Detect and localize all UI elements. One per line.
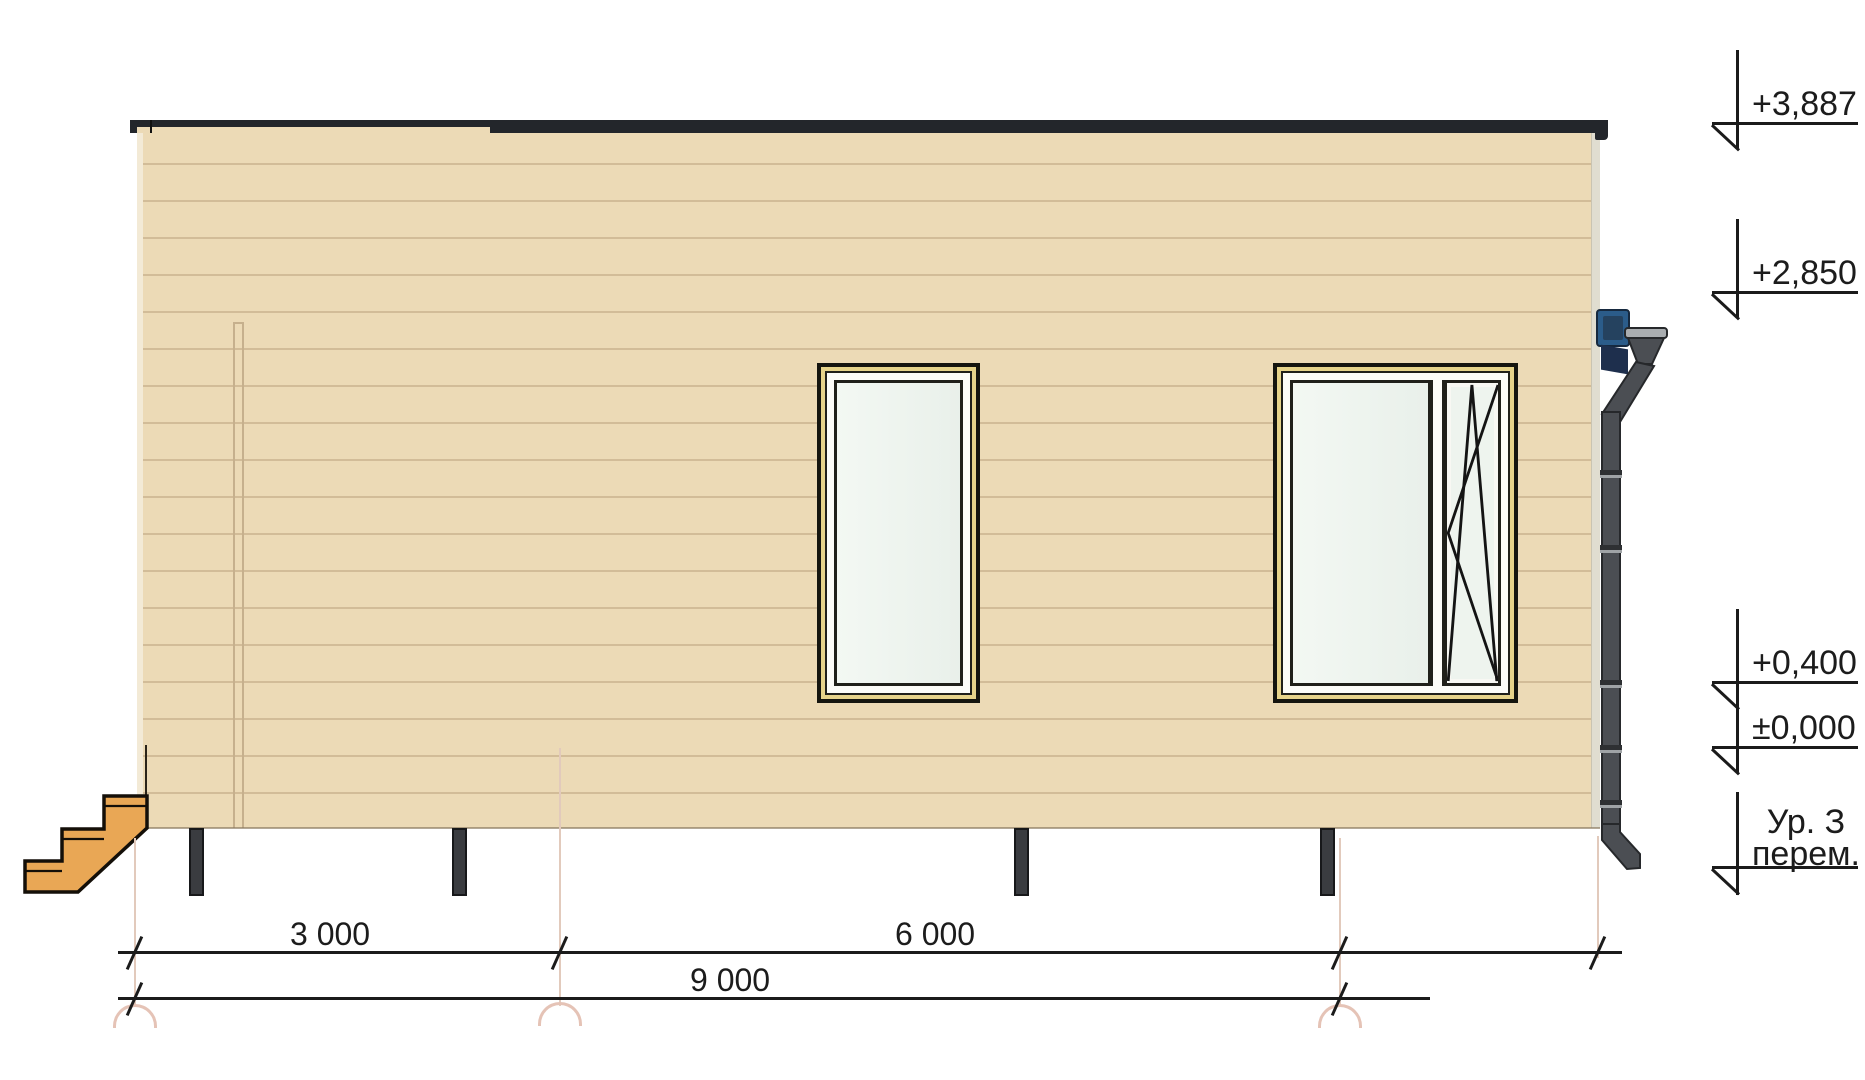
elevation-marker-line <box>1736 219 1739 317</box>
roof-fascia-joint-tick <box>150 120 152 133</box>
wall-bottom-edge <box>137 827 1600 829</box>
grid-extension-line <box>559 748 561 1006</box>
elevation-marker-line <box>1736 674 1739 772</box>
foundation-pile <box>452 828 467 896</box>
window-2 <box>1273 363 1518 703</box>
tilt-turn-opening-symbol-icon <box>1447 383 1498 683</box>
foundation-pile <box>1014 828 1029 896</box>
elevation-value: +3,887 <box>1752 87 1857 121</box>
roof-fascia-left-step <box>137 127 490 133</box>
window-2-casing <box>1281 371 1510 695</box>
elevation-value: ±0,000 <box>1752 711 1856 745</box>
elevation-marker-line <box>1736 50 1739 148</box>
elevation-value: +2,850 <box>1752 256 1857 290</box>
grid-bubble-arc <box>113 1004 157 1028</box>
grid-bubble-arc <box>1318 1004 1362 1028</box>
grid-extension-line <box>1339 838 1341 1006</box>
grid-bubble-arc <box>538 1002 582 1026</box>
window-2-casement <box>1444 380 1501 686</box>
foundation-pile <box>1320 828 1335 896</box>
elevation-marker-line <box>1736 792 1739 895</box>
gutter-funnel <box>1628 338 1664 364</box>
window-1 <box>817 363 980 703</box>
ground-level-label-line2: перем. <box>1748 838 1864 870</box>
roof-fascia-right-lip <box>1595 121 1608 140</box>
grid-extension-line <box>1597 836 1599 958</box>
elevation-value: +0,400 <box>1752 646 1857 680</box>
window-2-mullion <box>1431 380 1444 686</box>
window-1-casing <box>825 371 972 695</box>
elevation-drawing-canvas: +3,887 +2,850 +0,400 ±0,000 Ур. З перем.… <box>0 0 1865 1080</box>
dimension-label-6000: 6 000 <box>895 918 975 950</box>
ground-level-label-line1: Ур. З <box>1748 806 1864 838</box>
dimension-label-9000: 9 000 <box>690 964 770 996</box>
downspout <box>1594 326 1674 876</box>
window-1-glass <box>834 380 963 686</box>
gutter-funnel-rim <box>1625 328 1667 338</box>
dimension-line-total <box>118 997 1430 1000</box>
window-2-fixed-pane <box>1290 380 1431 686</box>
grid-extension-line <box>134 838 136 1006</box>
left-corner-trim <box>137 127 143 828</box>
downspout-elbow <box>1602 824 1640 869</box>
dimension-label-3000: 3 000 <box>290 918 370 950</box>
left-downpipe-outline <box>233 322 244 828</box>
foundation-pile <box>189 828 204 896</box>
